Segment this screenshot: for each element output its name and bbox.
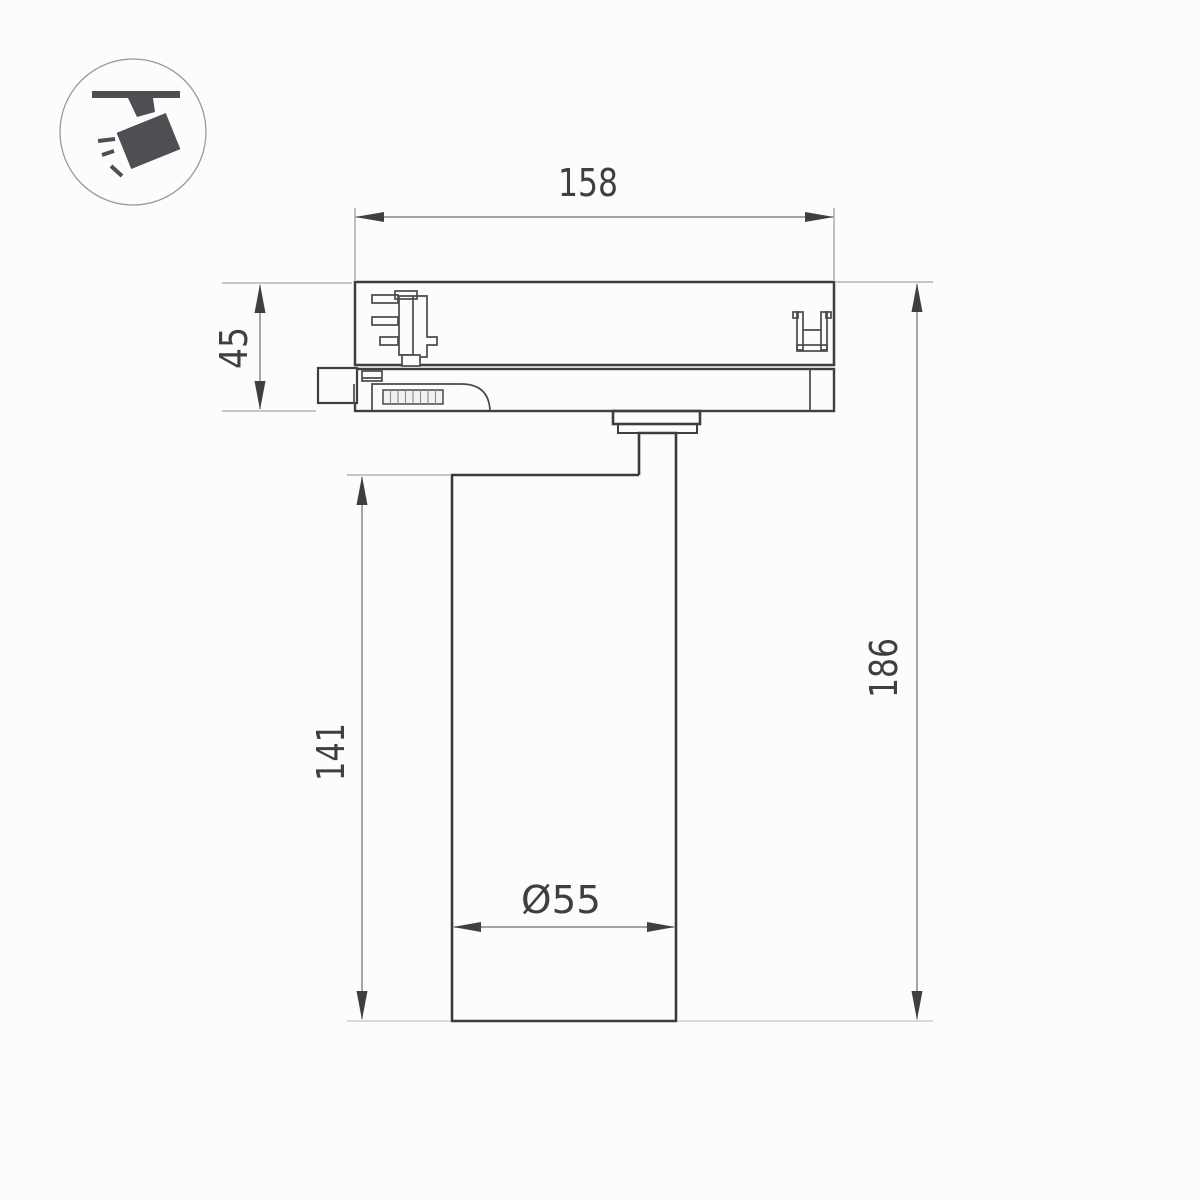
adapter-contact-block — [372, 291, 437, 366]
dimension-total-height: 186 — [678, 282, 933, 1021]
joint-flange-lower — [618, 424, 697, 433]
track-adapter — [318, 282, 834, 411]
arrow-up — [912, 283, 923, 312]
adapter-clip — [793, 312, 831, 351]
arrow-left — [453, 922, 481, 932]
arrow-down — [357, 991, 368, 1020]
joint-flange-upper — [613, 411, 700, 424]
dimension-label-body-diameter: Ø55 — [521, 878, 601, 922]
dimension-label-adapter-width: 158 — [558, 161, 618, 205]
icon-light-rays — [98, 139, 122, 176]
arrow-left — [355, 212, 384, 222]
icon-ceiling-track — [92, 91, 180, 98]
arrow-right — [805, 212, 834, 222]
arrow-down — [912, 991, 923, 1020]
adapter-lock-lever — [318, 368, 357, 403]
track-spotlight-icon — [60, 59, 206, 205]
adapter-phase-dial — [383, 390, 443, 404]
dimension-label-body-height: 141 — [309, 723, 353, 781]
arrow-up — [357, 476, 368, 505]
dimension-label-adapter-height: 45 — [212, 327, 256, 369]
track-light-dimension-drawing: 158 45 141 186 Ø55 — [0, 0, 1200, 1200]
arrow-down — [255, 381, 266, 410]
adapter-latch — [362, 371, 382, 381]
arrow-right — [647, 922, 675, 932]
lamp-assembly — [452, 411, 700, 1021]
icon-spotlight-head — [117, 113, 181, 169]
dimension-label-total-height: 186 — [862, 638, 906, 698]
dimension-adapter-width: 158 — [355, 161, 834, 280]
arrow-up — [255, 284, 266, 313]
icon-mount-stem — [128, 98, 155, 117]
dimension-body-diameter: Ø55 — [453, 878, 675, 932]
dimension-body-height: 141 — [309, 475, 450, 1021]
technical-drawing-page: 158 45 141 186 Ø55 — [0, 0, 1200, 1200]
lamp-body-and-stem — [452, 433, 676, 1021]
